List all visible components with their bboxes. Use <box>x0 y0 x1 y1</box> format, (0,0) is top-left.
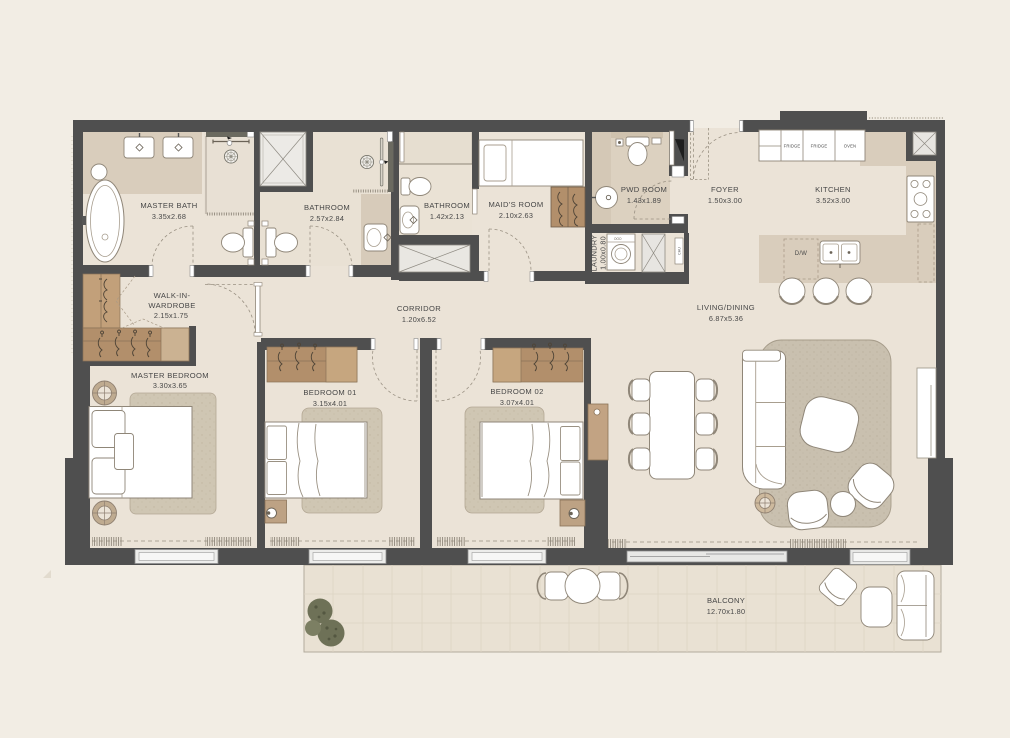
svg-text:3.52x3.00: 3.52x3.00 <box>816 196 850 205</box>
svg-text:2.57x2.84: 2.57x2.84 <box>310 214 344 223</box>
svg-text:1.00x0.80: 1.00x0.80 <box>599 236 608 270</box>
svg-text:2.10x2.63: 2.10x2.63 <box>499 211 533 220</box>
svg-text:6.87x5.36: 6.87x5.36 <box>709 314 743 323</box>
svg-text:1.43x1.89: 1.43x1.89 <box>627 196 661 205</box>
svg-text:3.15x4.01: 3.15x4.01 <box>313 399 347 408</box>
svg-text:BEDROOM 01: BEDROOM 01 <box>303 388 356 397</box>
svg-text:1.20x6.52: 1.20x6.52 <box>402 315 436 324</box>
svg-text:2.15x1.75: 2.15x1.75 <box>154 311 188 320</box>
svg-text:LAUNDRY: LAUNDRY <box>590 235 599 272</box>
svg-text:D/W: D/W <box>795 251 808 257</box>
svg-text:OVEN: OVEN <box>844 144 856 149</box>
svg-text:LIVING/DINING: LIVING/DINING <box>697 303 755 312</box>
svg-text:CORRIDOR: CORRIDOR <box>397 304 441 313</box>
svg-text:1.42x2.13: 1.42x2.13 <box>430 212 464 221</box>
svg-text:12.70x1.80: 12.70x1.80 <box>707 607 746 616</box>
svg-text:CHU: CHU <box>678 247 682 255</box>
svg-text:MAID'S ROOM: MAID'S ROOM <box>488 200 543 209</box>
svg-text:PWD ROOM: PWD ROOM <box>621 185 667 194</box>
svg-text:3.30x3.65: 3.30x3.65 <box>153 381 187 390</box>
svg-text:BALCONY: BALCONY <box>707 596 745 605</box>
svg-text:MASTER BATH: MASTER BATH <box>140 201 197 210</box>
svg-text:WALK-IN-: WALK-IN- <box>154 291 191 300</box>
svg-text:MASTER BEDROOM: MASTER BEDROOM <box>131 371 209 380</box>
svg-text:BATHROOM: BATHROOM <box>304 203 350 212</box>
svg-text:3.35x2.68: 3.35x2.68 <box>152 212 186 221</box>
svg-text:1.50x3.00: 1.50x3.00 <box>708 196 742 205</box>
svg-text:OOO: OOO <box>614 237 622 241</box>
svg-text:FRIDGE: FRIDGE <box>811 144 828 149</box>
svg-text:3.07x4.01: 3.07x4.01 <box>500 398 534 407</box>
svg-text:BATHROOM: BATHROOM <box>424 201 470 210</box>
svg-text:BEDROOM 02: BEDROOM 02 <box>490 387 543 396</box>
svg-text:KITCHEN: KITCHEN <box>815 185 851 194</box>
svg-text:FOYER: FOYER <box>711 185 739 194</box>
svg-text:FRIDGE: FRIDGE <box>784 144 801 149</box>
svg-text:WARDROBE: WARDROBE <box>148 301 195 310</box>
